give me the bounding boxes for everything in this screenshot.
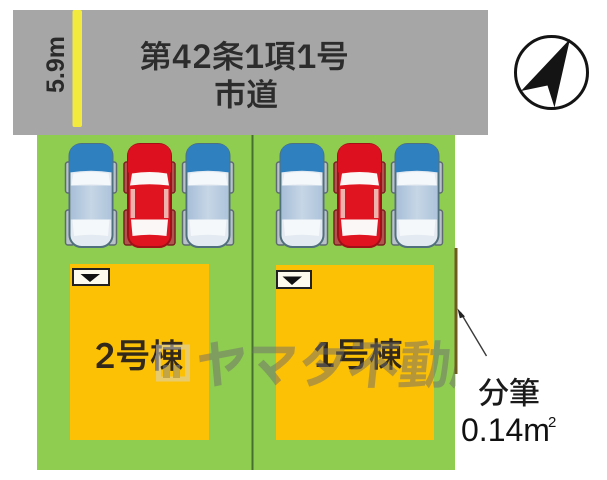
svg-text:5.9m: 5.9m xyxy=(42,36,70,93)
svg-text:0.14m: 0.14m xyxy=(461,412,550,448)
svg-text:2: 2 xyxy=(548,414,556,431)
